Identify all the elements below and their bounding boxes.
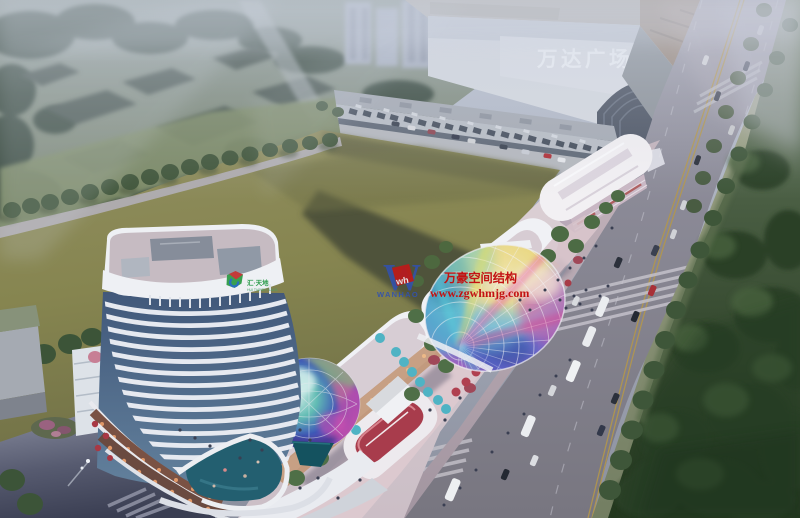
- svg-text:汇·天地: 汇·天地: [247, 278, 269, 287]
- svg-text:WANHAO: WANHAO: [377, 290, 419, 299]
- svg-text:wh: wh: [394, 275, 409, 287]
- svg-text:万豪空间结构: 万豪空间结构: [443, 270, 517, 285]
- svg-text:HUI TIANDI PLAZA: HUI TIANDI PLAZA: [247, 288, 278, 292]
- svg-text:www.zgwhmjg.com: www.zgwhmjg.com: [430, 286, 529, 300]
